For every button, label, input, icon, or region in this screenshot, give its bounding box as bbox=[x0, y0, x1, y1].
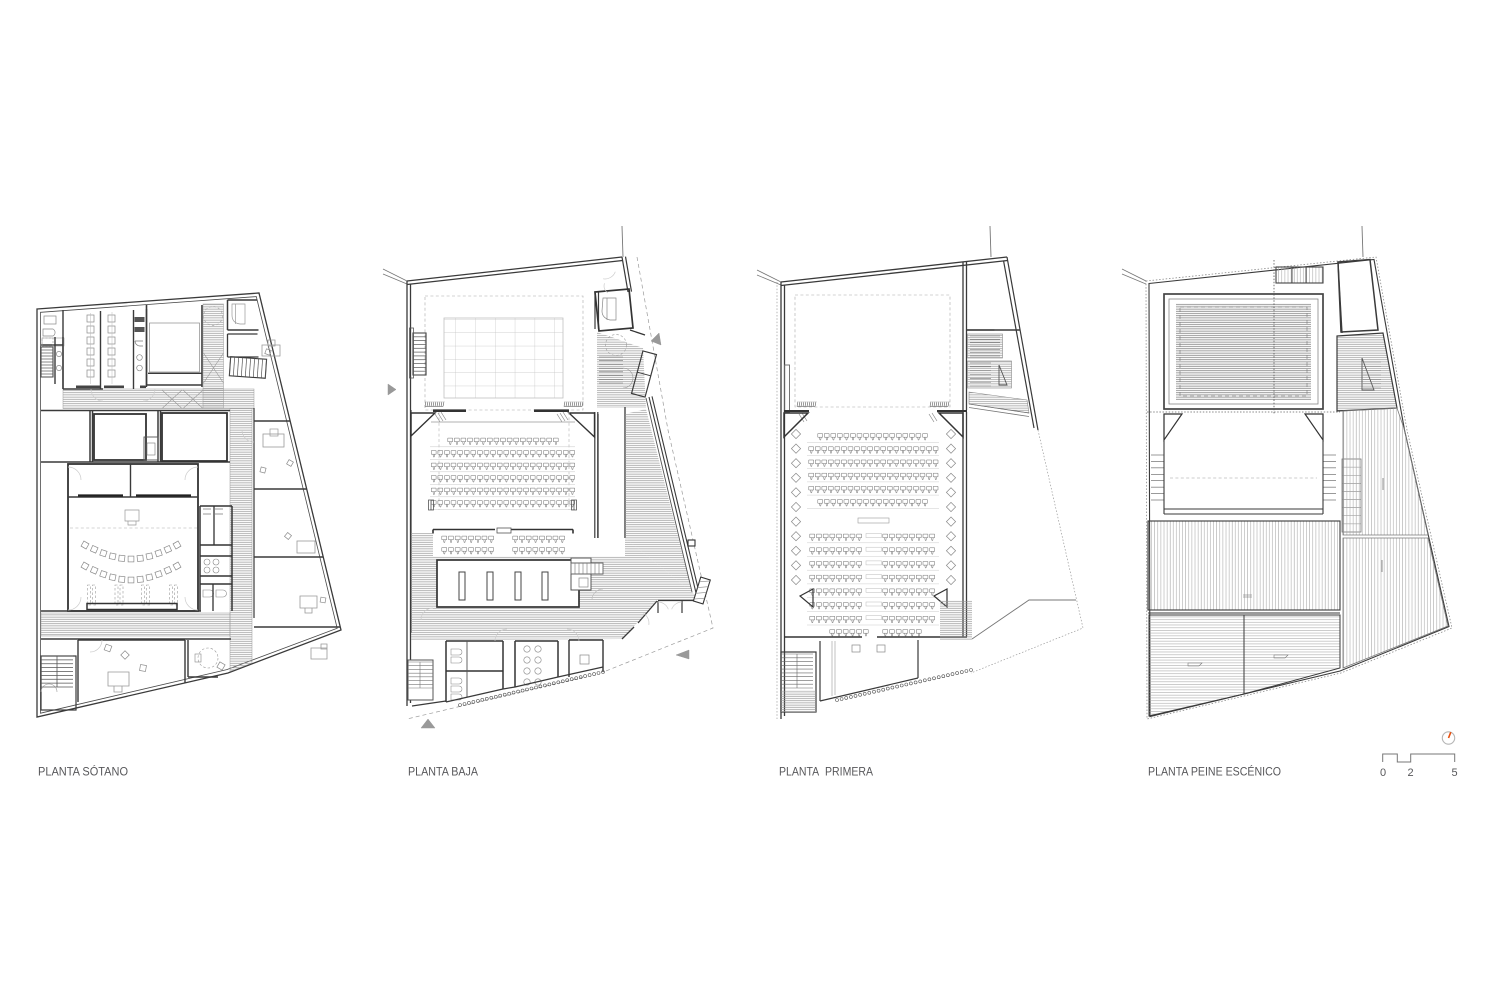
svg-text:PLANTA BAJA: PLANTA BAJA bbox=[408, 765, 478, 779]
svg-text:0: 0 bbox=[1380, 767, 1386, 779]
svg-text:PLANTA SÓTANO: PLANTA SÓTANO bbox=[38, 764, 128, 779]
svg-text:5: 5 bbox=[1452, 767, 1458, 779]
svg-text:PLANTA PRIMERA: PLANTA PRIMERA bbox=[779, 765, 873, 779]
svg-text:PLANTA PEINE ESCÉNICO: PLANTA PEINE ESCÉNICO bbox=[1148, 764, 1281, 779]
svg-text:2: 2 bbox=[1408, 767, 1414, 779]
